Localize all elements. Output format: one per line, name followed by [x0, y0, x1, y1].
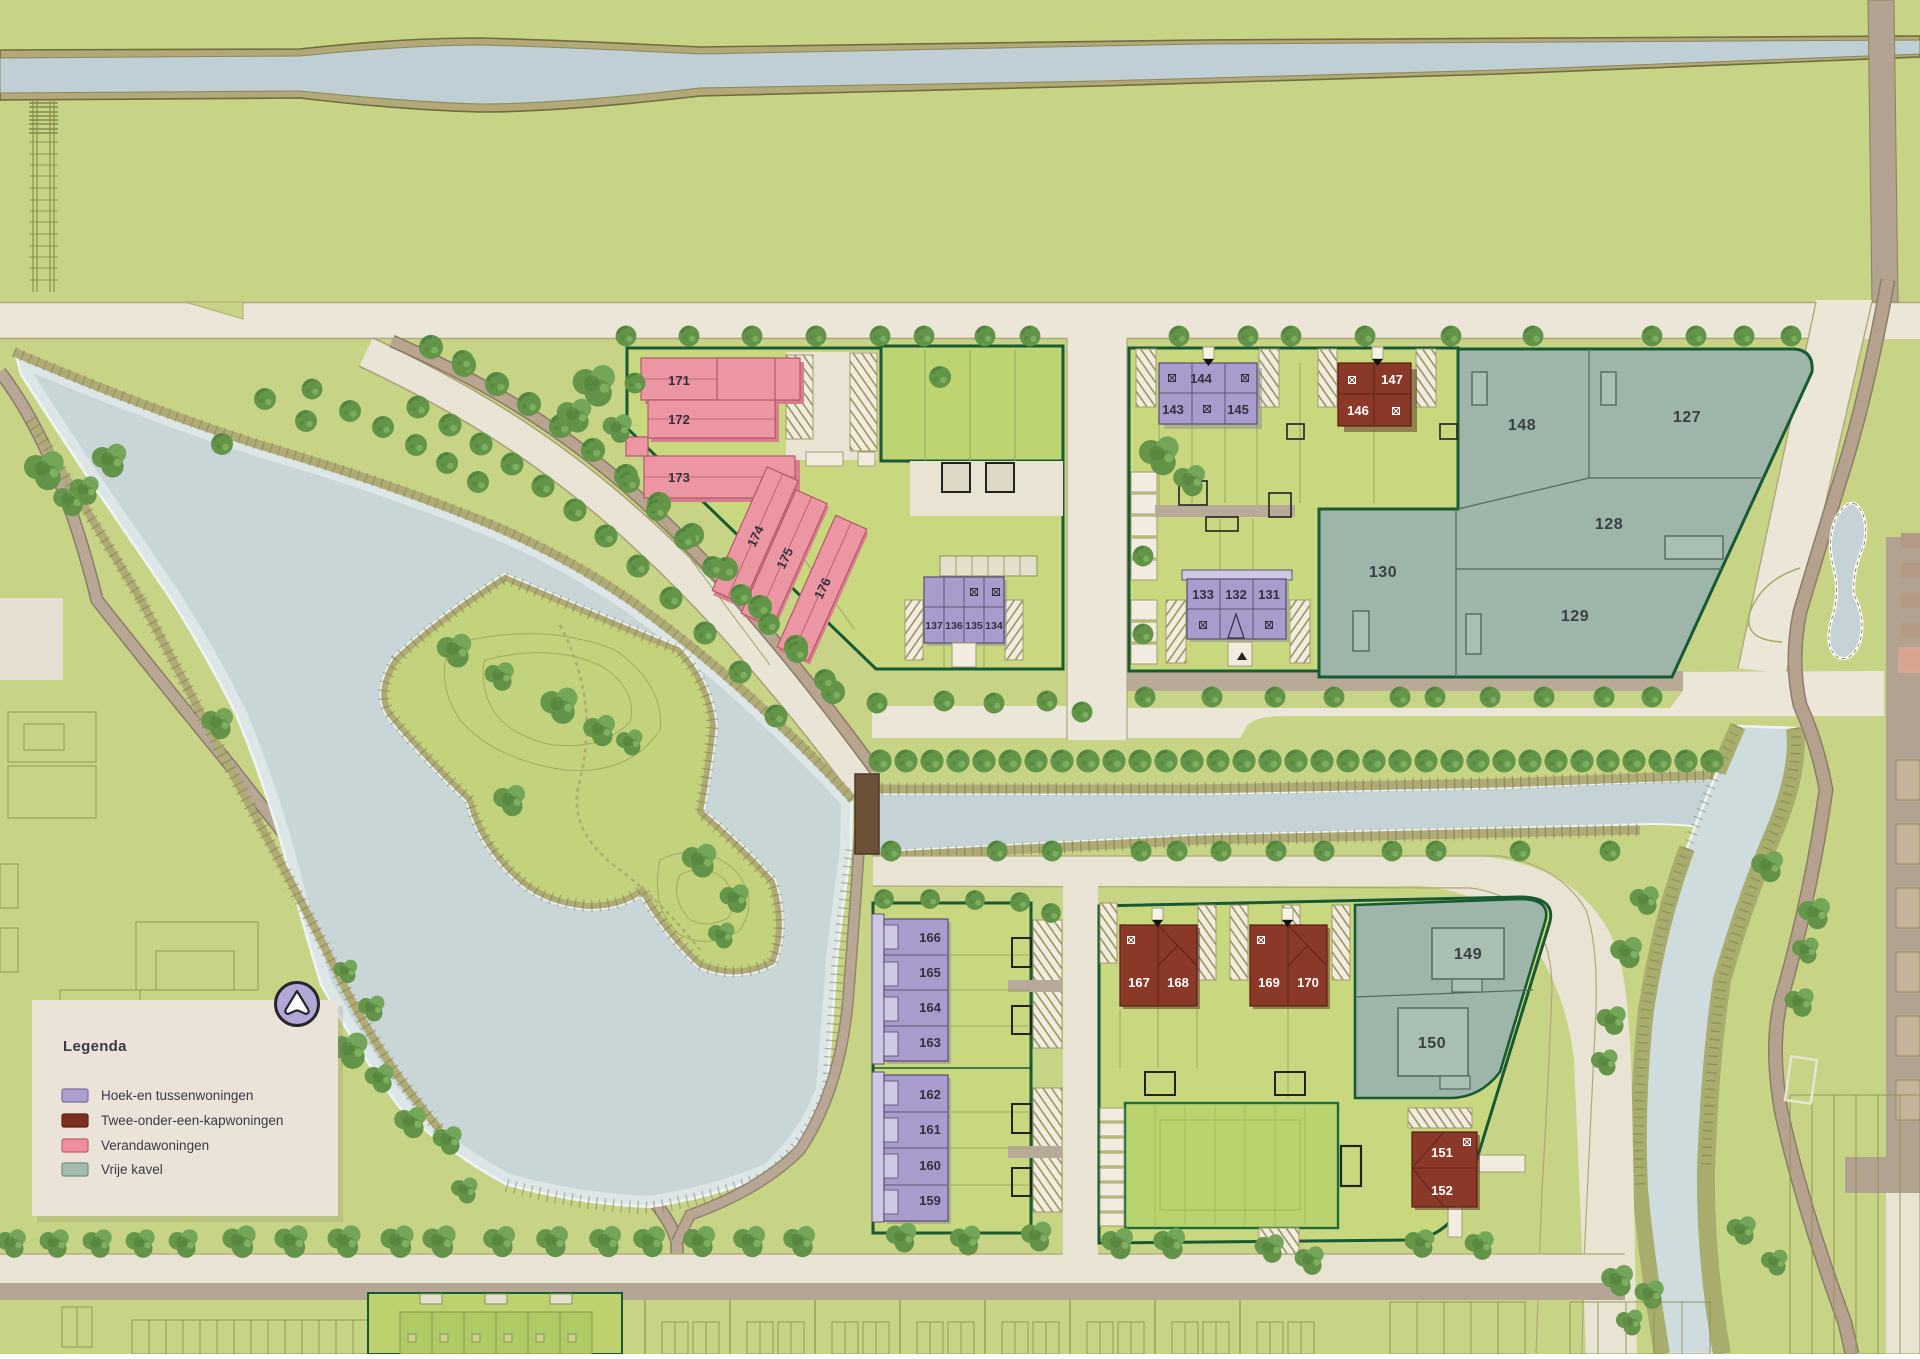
svg-text:163: 163 — [919, 1035, 941, 1050]
svg-text:145: 145 — [1227, 402, 1249, 417]
svg-text:162: 162 — [919, 1087, 941, 1102]
svg-text:Vrije kavel: Vrije kavel — [101, 1162, 163, 1177]
svg-text:132: 132 — [1225, 587, 1247, 602]
svg-text:161: 161 — [919, 1122, 941, 1137]
svg-text:143: 143 — [1162, 402, 1184, 417]
svg-text:129: 129 — [1561, 608, 1589, 625]
svg-text:133: 133 — [1192, 587, 1214, 602]
svg-text:149: 149 — [1454, 946, 1482, 963]
svg-text:148: 148 — [1508, 417, 1536, 434]
svg-text:171: 171 — [668, 373, 690, 388]
svg-text:Hoek-en tussenwoningen: Hoek-en tussenwoningen — [101, 1088, 253, 1103]
svg-text:137: 137 — [925, 620, 943, 632]
svg-text:173: 173 — [668, 470, 690, 485]
svg-text:146: 146 — [1347, 403, 1369, 418]
svg-text:136: 136 — [945, 620, 963, 632]
svg-text:166: 166 — [919, 930, 941, 945]
svg-text:144: 144 — [1190, 371, 1212, 386]
svg-text:130: 130 — [1369, 564, 1397, 581]
svg-text:Twee-onder-een-kapwoningen: Twee-onder-een-kapwoningen — [101, 1113, 283, 1128]
svg-text:147: 147 — [1381, 372, 1403, 387]
svg-text:159: 159 — [919, 1193, 941, 1208]
svg-text:150: 150 — [1418, 1035, 1446, 1052]
svg-text:165: 165 — [919, 965, 941, 980]
svg-text:168: 168 — [1167, 975, 1189, 990]
svg-text:167: 167 — [1128, 975, 1150, 990]
svg-text:128: 128 — [1595, 516, 1623, 533]
svg-text:164: 164 — [919, 1000, 941, 1015]
svg-text:131: 131 — [1258, 587, 1280, 602]
svg-text:172: 172 — [668, 412, 690, 427]
svg-text:170: 170 — [1297, 975, 1319, 990]
svg-text:152: 152 — [1431, 1183, 1453, 1198]
svg-text:Verandawoningen: Verandawoningen — [101, 1138, 209, 1153]
svg-text:127: 127 — [1673, 409, 1701, 426]
svg-text:151: 151 — [1431, 1145, 1453, 1160]
svg-text:135: 135 — [965, 620, 983, 632]
svg-text:160: 160 — [919, 1158, 941, 1173]
svg-text:169: 169 — [1258, 975, 1280, 990]
svg-text:Legenda: Legenda — [63, 1038, 127, 1055]
svg-text:134: 134 — [985, 620, 1003, 632]
